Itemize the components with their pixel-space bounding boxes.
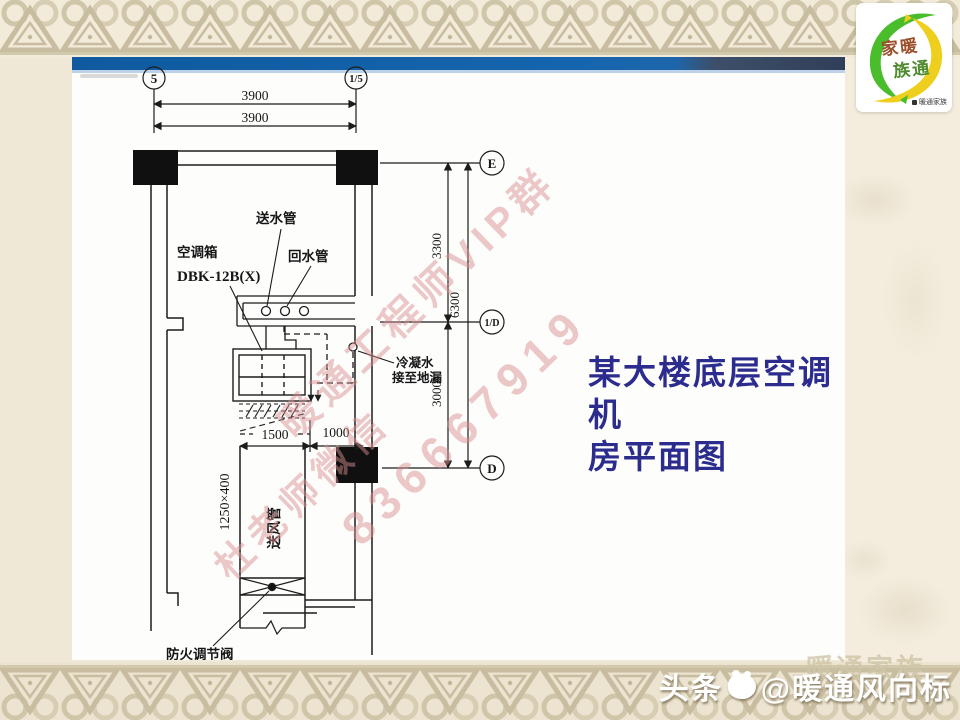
dim-1500: 1500	[262, 427, 289, 442]
ahu-box	[233, 349, 311, 401]
right-grid	[380, 151, 504, 480]
dim-3300: 3300	[429, 233, 444, 259]
label-supply-duct: 送风管	[266, 507, 282, 550]
footer-account: @暖通风向标	[761, 664, 952, 708]
border-top-pattern	[0, 0, 960, 58]
dim-1000: 1000	[323, 425, 350, 440]
grid-row-d1: 1/D	[485, 318, 500, 329]
grid-col-b: 1/5	[349, 74, 362, 85]
label-condensate-2: 接至地漏	[392, 370, 443, 385]
footer-handle: 头条 @暖通风向标	[659, 664, 952, 708]
label-fire-damper: 防火调节阀	[166, 646, 234, 660]
slide-caption-line1: 某大楼底层空调机	[588, 352, 863, 436]
grid-row-d: D	[487, 461, 496, 476]
brand-logo: 家暖 族通 暖通家族	[856, 3, 952, 112]
slide: { "title": { "line1": "某大楼底层空调机", "line2…	[0, 0, 960, 720]
slide-caption-line2: 房平面图	[588, 436, 863, 478]
logo-mark-icon	[912, 100, 917, 105]
label-return-pipe: 回水管	[288, 248, 329, 264]
logo-name-line2: 族通	[892, 53, 932, 82]
logo-tagline: 暖通家族	[912, 97, 947, 107]
label-ahu-name: 空调箱	[177, 244, 218, 260]
pipe-manifold	[237, 296, 355, 326]
slide-caption: 某大楼底层空调机 房平面图	[588, 352, 863, 479]
walls	[151, 151, 372, 655]
logo-tagline-text: 暖通家族	[919, 97, 947, 107]
label-condensate-1: 冷凝水	[396, 355, 434, 370]
dim-3900-a: 3900	[242, 88, 269, 103]
dim-duct-size: 1250×400	[218, 474, 233, 531]
grid-col-a: 5	[151, 71, 158, 86]
mascot-icon	[728, 674, 756, 699]
label-supply-pipe: 送水管	[255, 210, 297, 226]
footer-prefix: 头条	[659, 664, 723, 708]
border-left	[0, 58, 72, 662]
grid-row-e: E	[488, 156, 497, 171]
dim-6300: 6300	[447, 292, 462, 318]
label-ahu-model: DBK-12B(X)	[177, 269, 260, 285]
dim-3900-b: 3900	[242, 110, 269, 125]
